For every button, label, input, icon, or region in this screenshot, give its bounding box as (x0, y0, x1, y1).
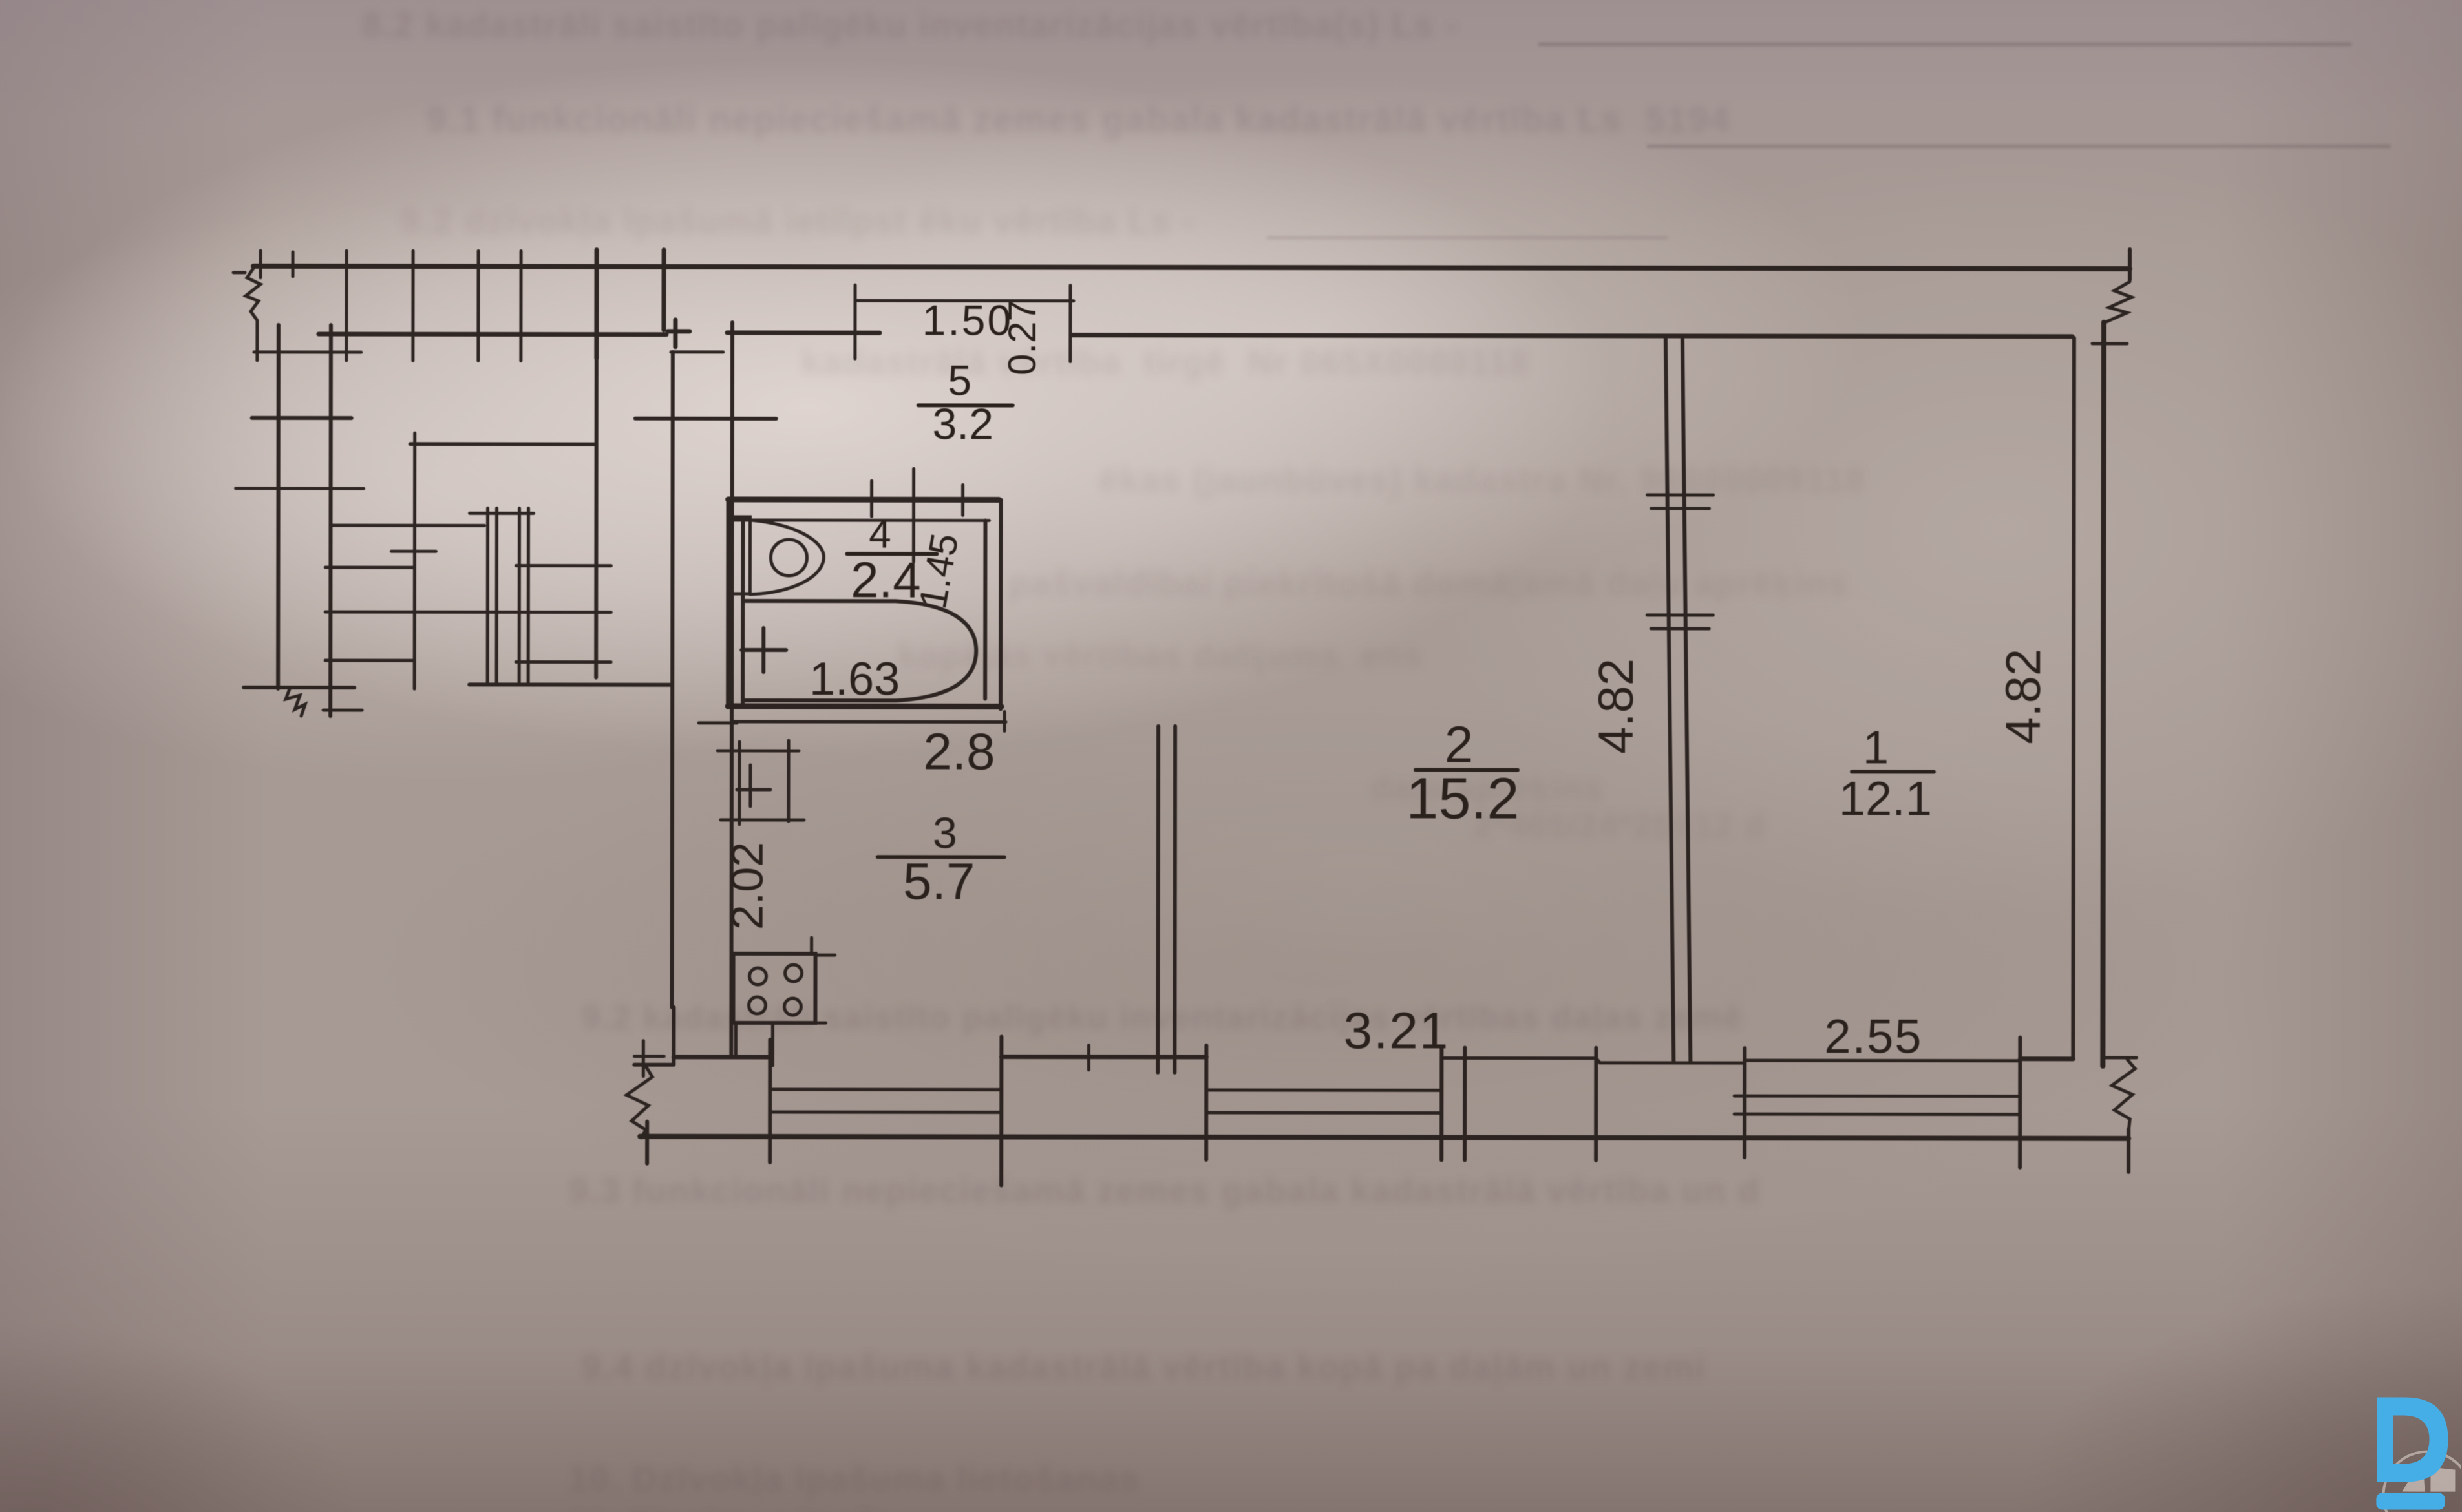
svg-text:0.27: 0.27 (1001, 300, 1044, 375)
svg-text:2.4: 2.4 (851, 551, 921, 608)
svg-text:2.55: 2.55 (1824, 1009, 1922, 1063)
svg-text:12.1: 12.1 (1839, 772, 1932, 825)
svg-text:3.21: 3.21 (1343, 1002, 1449, 1059)
svg-text:1.45: 1.45 (911, 530, 966, 612)
svg-text:1: 1 (1863, 722, 1889, 773)
svg-text:1.63: 1.63 (809, 653, 900, 705)
svg-text:15.2: 15.2 (1406, 766, 1519, 831)
svg-text:5.7: 5.7 (903, 852, 975, 910)
svg-text:2.02: 2.02 (722, 842, 772, 930)
svg-text:2: 2 (1445, 715, 1474, 773)
svg-text:4.82: 4.82 (1589, 658, 1644, 754)
svg-text:4.82: 4.82 (1996, 649, 2051, 744)
svg-text:2.8: 2.8 (923, 722, 995, 780)
svg-text:4: 4 (869, 512, 891, 556)
svg-text:1.50: 1.50 (922, 296, 1013, 344)
svg-text:5: 5 (948, 356, 971, 404)
svg-text:3: 3 (933, 808, 957, 857)
